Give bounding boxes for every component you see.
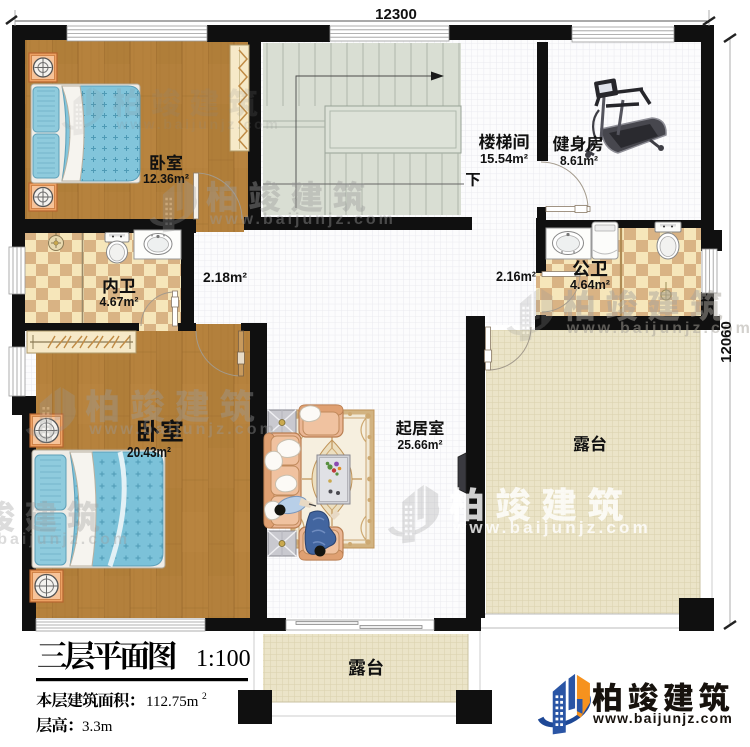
- svg-text:3.3m: 3.3m: [82, 719, 113, 735]
- svg-text:25.66m²: 25.66m²: [398, 437, 444, 452]
- svg-text:12300: 12300: [375, 6, 417, 23]
- svg-text:12060: 12060: [718, 321, 735, 363]
- svg-text:8.61m²: 8.61m²: [560, 153, 599, 168]
- svg-text:www.baijunjz.com: www.baijunjz.com: [116, 116, 281, 132]
- svg-text:www.baijunjz.com: www.baijunjz.com: [452, 518, 651, 537]
- svg-text:4.64m²: 4.64m²: [570, 277, 611, 292]
- svg-text:15.54m²: 15.54m²: [480, 151, 529, 166]
- svg-text:2: 2: [202, 692, 207, 702]
- svg-text:www.baijunjz.com: www.baijunjz.com: [592, 710, 733, 726]
- svg-text:20.43m²: 20.43m²: [127, 445, 171, 461]
- svg-text:www.baijunjz.com: www.baijunjz.com: [209, 211, 396, 228]
- svg-text:4.67m²: 4.67m²: [100, 294, 140, 309]
- svg-text:www.baijunjz.com: www.baijunjz.com: [88, 421, 277, 438]
- svg-text:www.baijunjz.com: www.baijunjz.com: [0, 531, 130, 548]
- svg-text:2.16m²: 2.16m²: [496, 269, 536, 284]
- svg-text:1:100: 1:100: [196, 646, 251, 672]
- svg-text:112.75m: 112.75m: [146, 694, 199, 710]
- svg-text:2.18m²: 2.18m²: [203, 269, 247, 285]
